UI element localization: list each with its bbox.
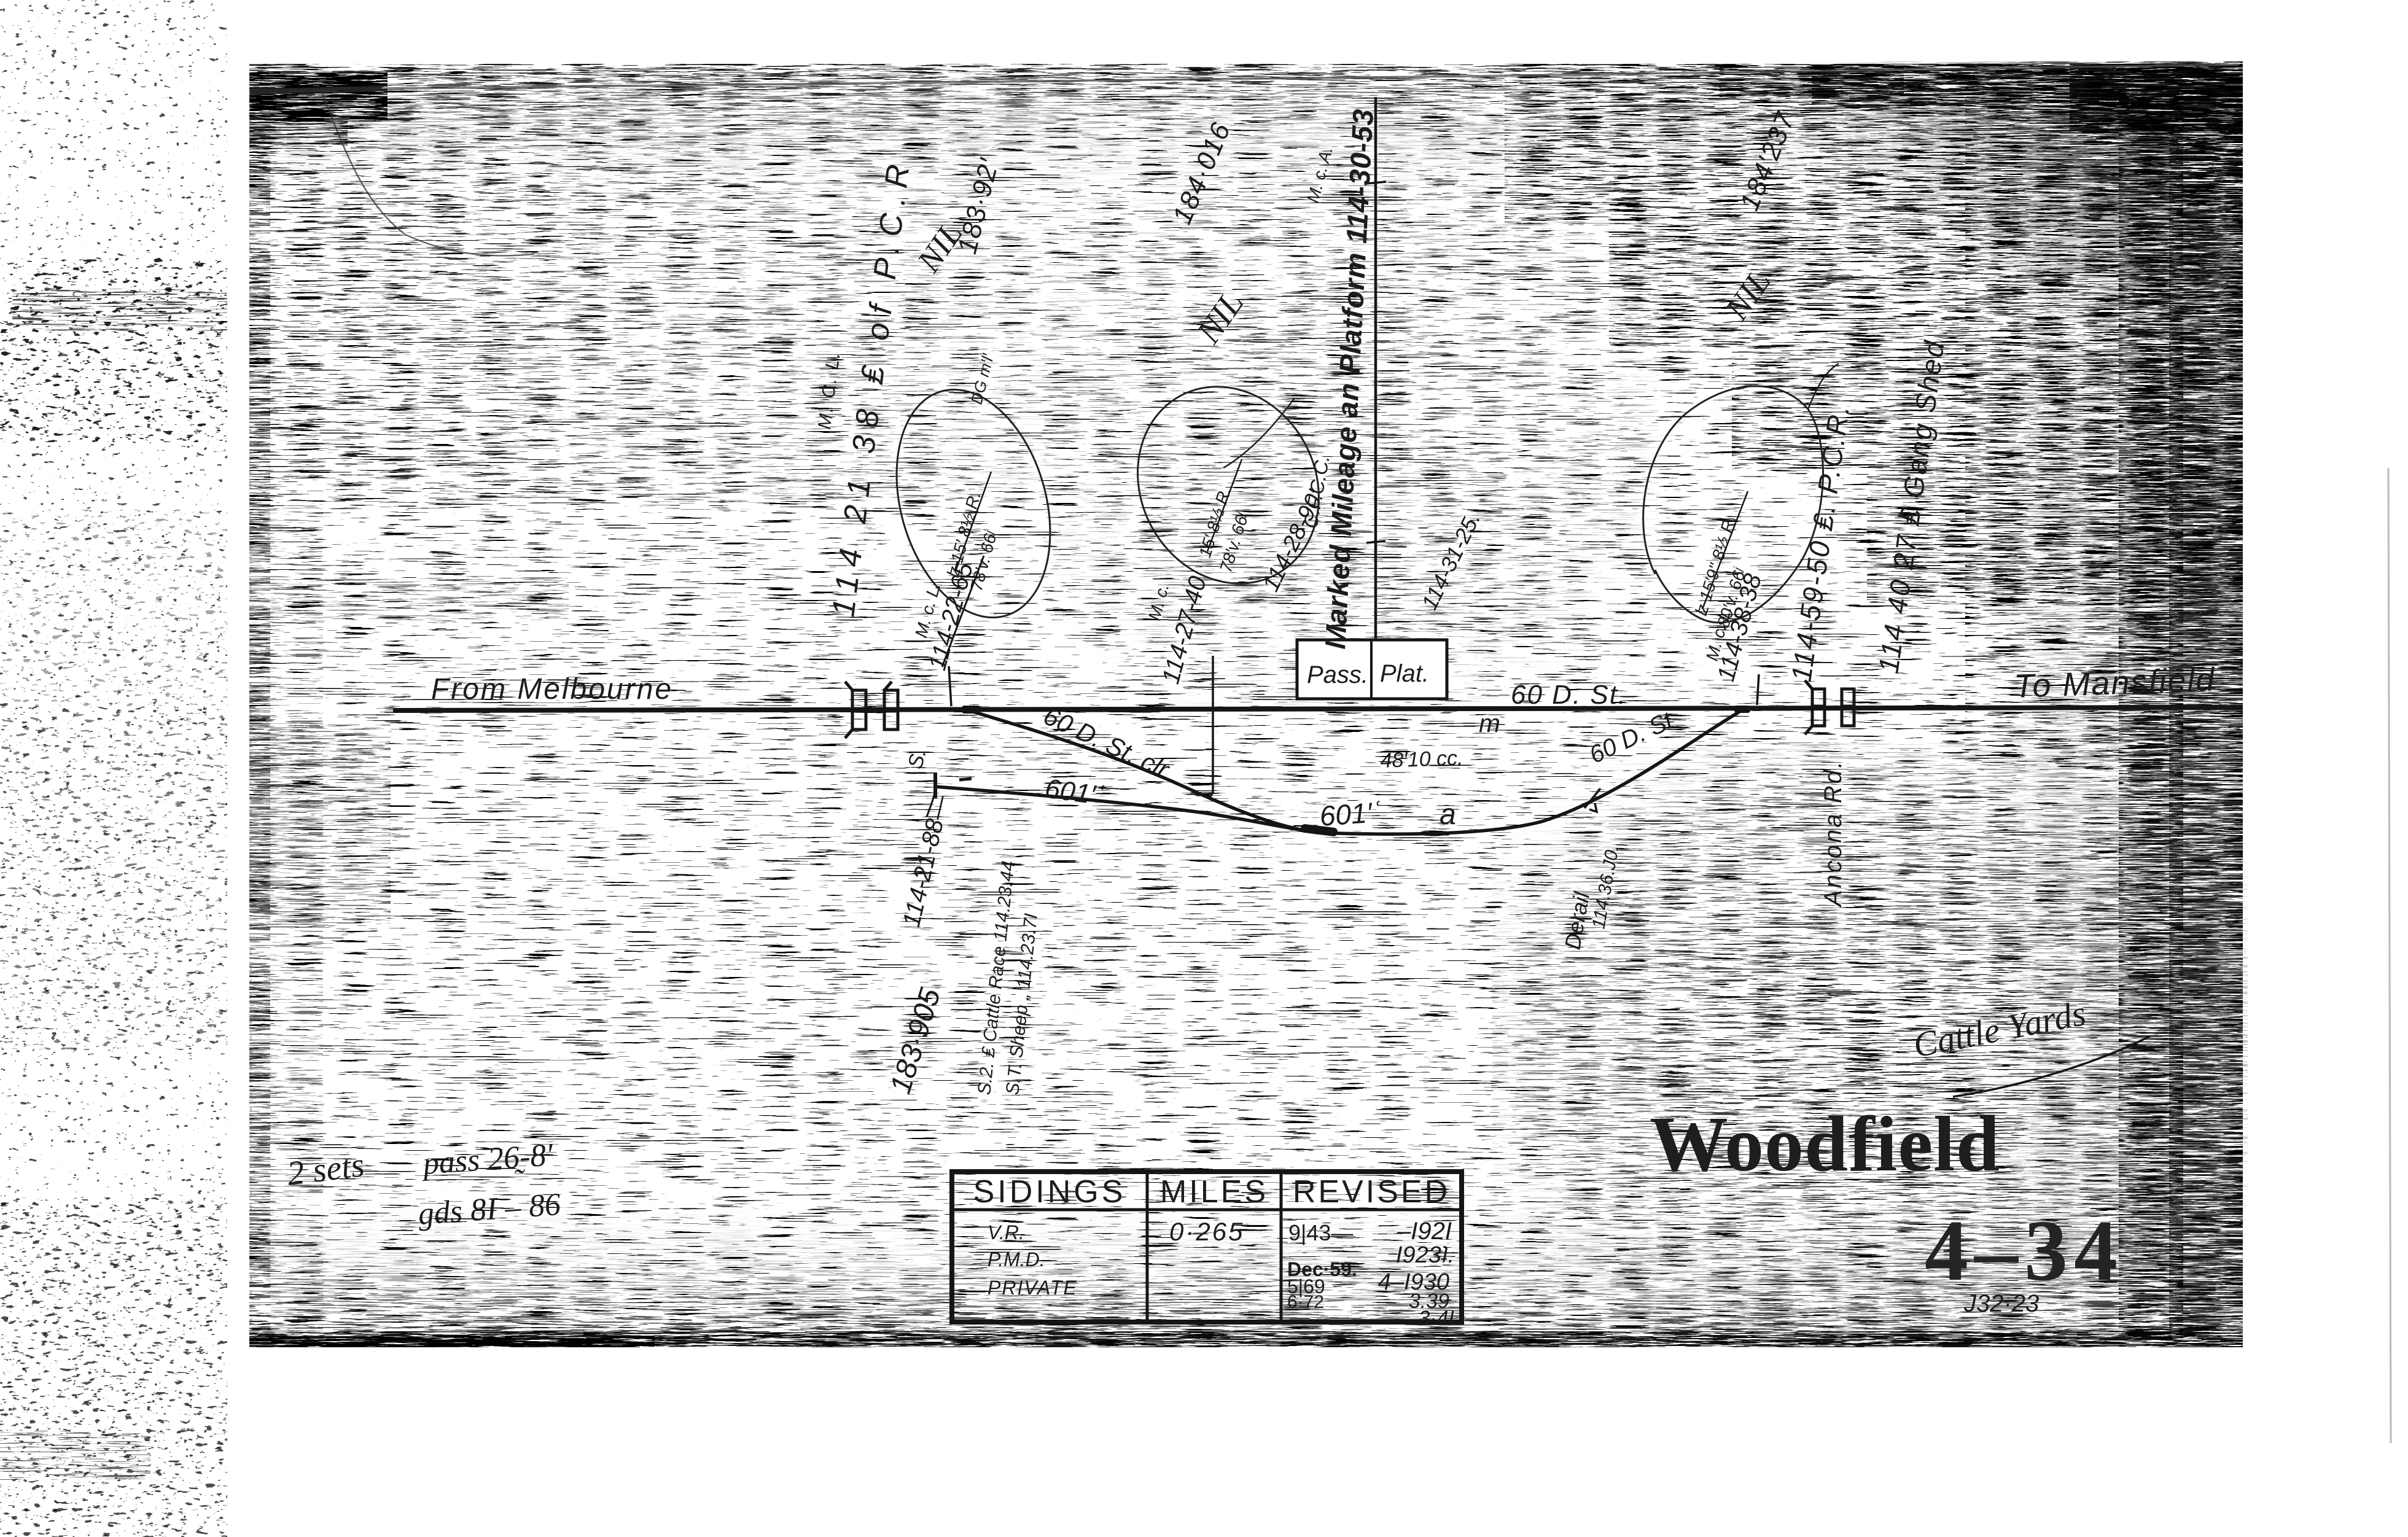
svg-text:601′ʿ: 601′ʿ — [1319, 796, 1382, 832]
svg-text:I923ʇ.: I923ʇ. — [1396, 1242, 1454, 1268]
svg-text:REVISED: REVISED — [1293, 1174, 1450, 1210]
svg-text:MILES: MILES — [1160, 1174, 1268, 1210]
svg-text:60 D. St.: 60 D. St. — [1511, 680, 1627, 710]
svg-text:PRIVATE: PRIVATE — [988, 1277, 1078, 1299]
svg-text:To Mansfield: To Mansfield — [2013, 661, 2216, 705]
svg-text:V.R.: V.R. — [988, 1221, 1024, 1243]
svg-text:Pass.: Pass. — [1307, 661, 1368, 688]
svg-text:4–34: 4–34 — [1925, 1202, 2124, 1299]
svg-text:J32·23: J32·23 — [1963, 1290, 2039, 1317]
svg-text:Woodfield: Woodfield — [1650, 1100, 2000, 1188]
svg-text:Plat.: Plat. — [1380, 660, 1429, 687]
svg-text:m: m — [1479, 709, 1500, 737]
svg-text:9|43—: 9|43— — [1288, 1220, 1353, 1245]
svg-text:SIDINGS: SIDINGS — [973, 1174, 1126, 1210]
svg-text:Ancona Rd.: Ancona Rd. — [1820, 760, 1847, 908]
svg-text:48′10 cc.: 48′10 cc. — [1380, 746, 1463, 772]
svg-text:6·72: 6·72 — [1287, 1292, 1324, 1312]
svg-text:0·265: 0·265 — [1169, 1217, 1244, 1246]
svg-text:a: a — [1440, 798, 1456, 831]
svg-text:From Melbourne: From Melbourne — [431, 673, 673, 706]
svg-text:3·4I: 3·4I — [1418, 1307, 1454, 1330]
svg-text:P.M.D.: P.M.D. — [988, 1248, 1045, 1270]
svg-text:–I92I: –I92I — [1397, 1218, 1452, 1245]
